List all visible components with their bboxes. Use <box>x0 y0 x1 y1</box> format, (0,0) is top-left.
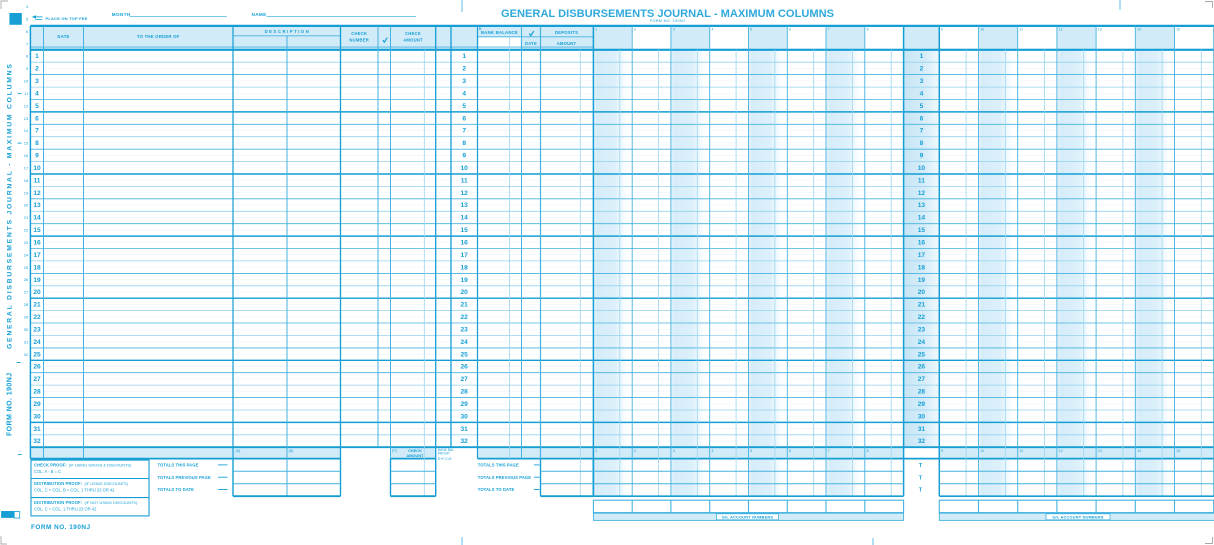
svg-text:15: 15 <box>918 227 926 234</box>
svg-text:TOTALS TO DATE: TOTALS TO DATE <box>478 487 515 492</box>
svg-text:4: 4 <box>712 28 714 32</box>
svg-text:12: 12 <box>1059 28 1063 32</box>
svg-text:2: 2 <box>634 449 636 453</box>
svg-text:3: 3 <box>673 28 675 32</box>
svg-text:14: 14 <box>33 215 41 222</box>
svg-text:11: 11 <box>918 177 925 184</box>
svg-text:31: 31 <box>24 339 29 344</box>
svg-text:15: 15 <box>461 227 469 234</box>
svg-text:7: 7 <box>828 449 830 453</box>
svg-text:13: 13 <box>1098 449 1102 453</box>
svg-text:19: 19 <box>461 277 469 284</box>
svg-text:28: 28 <box>33 389 41 396</box>
svg-text:23: 23 <box>33 326 41 333</box>
svg-text:21: 21 <box>33 302 41 309</box>
svg-text:4: 4 <box>920 91 924 98</box>
svg-text:3: 3 <box>920 78 924 85</box>
svg-text:6: 6 <box>462 115 466 122</box>
svg-text:3: 3 <box>462 78 466 85</box>
svg-text:25: 25 <box>918 351 926 358</box>
svg-text:AMOUNT: AMOUNT <box>557 41 577 46</box>
svg-text:1: 1 <box>920 53 924 60</box>
svg-text:32: 32 <box>33 438 41 445</box>
svg-text:17: 17 <box>24 166 29 171</box>
svg-text:8: 8 <box>867 28 869 32</box>
svg-text:31: 31 <box>33 426 41 433</box>
svg-text:8: 8 <box>35 140 39 147</box>
svg-text:TOTALS THIS PAGE: TOTALS THIS PAGE <box>158 463 199 468</box>
svg-text:7: 7 <box>828 28 830 32</box>
svg-text:31: 31 <box>461 426 469 433</box>
svg-text:16: 16 <box>33 240 41 247</box>
svg-text:GENERAL DISBURSEMENTS JOURNAL: GENERAL DISBURSEMENTS JOURNAL - MAXIMUM … <box>7 63 14 349</box>
svg-text:(IF USING GROSS & DISCOUNTS): (IF USING GROSS & DISCOUNTS) <box>69 463 132 468</box>
svg-text:10: 10 <box>980 449 984 453</box>
svg-text:7: 7 <box>920 128 924 135</box>
svg-text:PLACE ON TOP FEE: PLACE ON TOP FEE <box>46 16 88 21</box>
svg-text:6: 6 <box>920 115 924 122</box>
svg-text:23: 23 <box>461 326 469 333</box>
svg-text:NUMBER: NUMBER <box>349 37 369 42</box>
svg-text:22: 22 <box>24 228 29 233</box>
svg-text:13: 13 <box>918 202 926 209</box>
svg-text:26: 26 <box>461 364 469 371</box>
svg-text:32: 32 <box>918 438 926 445</box>
svg-text:17: 17 <box>918 252 926 259</box>
svg-text:14: 14 <box>24 128 29 133</box>
svg-text:8: 8 <box>920 140 924 147</box>
svg-text:CHECK PROOF:: CHECK PROOF: <box>34 463 67 468</box>
svg-text:26: 26 <box>918 364 926 371</box>
svg-text:18: 18 <box>918 264 926 271</box>
svg-text:TO THE ORDER OF: TO THE ORDER OF <box>137 34 180 39</box>
svg-text:(C): (C) <box>392 448 397 452</box>
svg-text:AMOUNT: AMOUNT <box>403 37 423 42</box>
svg-text:DATE: DATE <box>525 41 537 46</box>
svg-text:TOTALS PREVIOUS PAGE: TOTALS PREVIOUS PAGE <box>478 475 531 480</box>
svg-text:15: 15 <box>24 141 29 146</box>
svg-text:15: 15 <box>1176 28 1180 32</box>
svg-text:21: 21 <box>461 302 469 309</box>
svg-text:9: 9 <box>462 153 466 160</box>
svg-text:22: 22 <box>918 314 926 321</box>
svg-text:13: 13 <box>24 116 29 121</box>
svg-text:21: 21 <box>24 215 29 220</box>
svg-text:11: 11 <box>34 177 41 184</box>
svg-text:FORM NO. 190NJ: FORM NO. 190NJ <box>650 19 685 23</box>
svg-text:12: 12 <box>461 190 469 197</box>
svg-text:6: 6 <box>35 115 39 122</box>
svg-text:32: 32 <box>461 438 469 445</box>
svg-text:10: 10 <box>33 165 41 172</box>
svg-text:D E S C R I P T I O N: D E S C R I P T I O N <box>265 29 309 34</box>
svg-text:10: 10 <box>918 165 926 172</box>
svg-text:13: 13 <box>1098 28 1102 32</box>
svg-text:COL. C + COL. B = COL. 1 THRU: COL. C + COL. B = COL. 1 THRU 23 OR 42 <box>34 487 115 492</box>
svg-text:3: 3 <box>673 449 675 453</box>
svg-text:29: 29 <box>33 401 41 408</box>
svg-text:20: 20 <box>33 289 41 296</box>
svg-text:23: 23 <box>24 240 29 245</box>
svg-text:NAME: NAME <box>252 12 267 17</box>
svg-text:15: 15 <box>1176 449 1180 453</box>
svg-text:T: T <box>919 488 923 494</box>
svg-text:11: 11 <box>461 177 468 184</box>
svg-text:2: 2 <box>634 28 636 32</box>
svg-text:20: 20 <box>24 203 29 208</box>
svg-text:CHECK: CHECK <box>405 31 421 36</box>
svg-text:COL. C = COL. 1 THRU 23 OR 42: COL. C = COL. 1 THRU 23 OR 42 <box>34 507 97 512</box>
svg-text:BANK BALANCE: BANK BALANCE <box>481 30 518 35</box>
svg-text:17: 17 <box>33 252 41 259</box>
svg-text:5: 5 <box>750 28 752 32</box>
svg-text:12: 12 <box>1059 449 1063 453</box>
svg-text:1: 1 <box>595 449 597 453</box>
svg-text:26: 26 <box>33 364 41 371</box>
svg-text:18: 18 <box>33 264 41 271</box>
svg-text:G/L ACCOUNT NUMBERS: G/L ACCOUNT NUMBERS <box>722 515 774 520</box>
svg-text:5: 5 <box>462 103 466 110</box>
svg-text:20: 20 <box>918 289 926 296</box>
svg-text:3: 3 <box>35 78 39 85</box>
svg-text:DISTRIBUTION PROOF:: DISTRIBUTION PROOF: <box>34 481 82 486</box>
svg-text:11: 11 <box>1020 28 1024 32</box>
svg-text:8: 8 <box>867 449 869 453</box>
svg-text:28: 28 <box>461 389 469 396</box>
svg-text:29: 29 <box>918 401 926 408</box>
svg-text:15: 15 <box>33 227 41 234</box>
svg-text:30: 30 <box>24 327 29 332</box>
svg-text:19: 19 <box>918 277 926 284</box>
svg-text:1: 1 <box>35 53 39 60</box>
svg-text:28: 28 <box>24 302 29 307</box>
svg-text:(A): (A) <box>236 449 241 453</box>
svg-text:25: 25 <box>24 265 29 270</box>
svg-text:(IF USING DISCOUNTS): (IF USING DISCOUNTS) <box>85 481 129 486</box>
svg-text:5: 5 <box>35 103 39 110</box>
svg-text:30: 30 <box>918 413 926 420</box>
svg-text:4: 4 <box>712 449 714 453</box>
svg-text:24: 24 <box>461 339 469 346</box>
svg-text:PROOF:: PROOF: <box>438 452 451 456</box>
svg-text:27: 27 <box>461 376 469 383</box>
svg-text:4: 4 <box>35 91 39 98</box>
svg-text:AMOUNT: AMOUNT <box>406 453 424 458</box>
svg-text:FORM NO. 190NJ: FORM NO. 190NJ <box>31 524 91 531</box>
svg-text:24: 24 <box>24 252 29 257</box>
svg-text:29: 29 <box>24 315 29 320</box>
svg-text:TOTALS THIS PAGE: TOTALS THIS PAGE <box>478 463 519 468</box>
svg-text:5: 5 <box>920 103 924 110</box>
svg-text:5: 5 <box>750 449 752 453</box>
svg-text:16: 16 <box>918 240 926 247</box>
svg-text:T: T <box>919 475 923 481</box>
svg-text:CHECK: CHECK <box>351 31 367 36</box>
svg-text:26: 26 <box>24 277 29 282</box>
svg-text:T: T <box>919 463 923 469</box>
svg-text:14: 14 <box>461 215 469 222</box>
svg-text:31: 31 <box>918 426 926 433</box>
svg-text:29: 29 <box>461 401 469 408</box>
svg-text:21: 21 <box>918 302 926 309</box>
svg-text:FORM NO. 190NJ: FORM NO. 190NJ <box>7 372 14 436</box>
svg-text:14: 14 <box>1137 28 1141 32</box>
svg-text:30: 30 <box>461 413 469 420</box>
svg-text:4: 4 <box>462 91 466 98</box>
svg-text:6: 6 <box>789 28 791 32</box>
svg-text:9: 9 <box>35 153 39 160</box>
svg-text:24: 24 <box>918 339 926 346</box>
svg-text:TOTALS TO DATE: TOTALS TO DATE <box>158 487 195 492</box>
svg-text:20: 20 <box>461 289 469 296</box>
svg-text:2: 2 <box>462 66 466 73</box>
svg-text:8: 8 <box>462 140 466 147</box>
svg-text:18: 18 <box>24 178 29 183</box>
svg-text:10: 10 <box>24 79 29 84</box>
svg-text:28: 28 <box>918 389 926 396</box>
svg-text:19: 19 <box>24 190 29 195</box>
svg-text:25: 25 <box>33 351 41 358</box>
svg-text:23: 23 <box>918 326 926 333</box>
svg-text:DATE: DATE <box>57 34 69 39</box>
svg-text:1: 1 <box>462 53 466 60</box>
svg-text:2: 2 <box>920 66 924 73</box>
svg-text:7: 7 <box>35 128 39 135</box>
svg-text:TOTALS PREVIOUS PAGE: TOTALS PREVIOUS PAGE <box>158 475 211 480</box>
svg-text:19: 19 <box>33 277 41 284</box>
svg-text:14: 14 <box>918 215 926 222</box>
svg-text:2: 2 <box>35 66 39 73</box>
svg-text:(B): (B) <box>289 449 294 453</box>
svg-text:24: 24 <box>33 339 41 346</box>
svg-text:22: 22 <box>461 314 469 321</box>
svg-text:9: 9 <box>920 153 924 160</box>
svg-text:12: 12 <box>918 190 926 197</box>
svg-text:10: 10 <box>461 165 469 172</box>
svg-text:7: 7 <box>462 128 466 135</box>
svg-text:G/L ACCOUNT NUMBERS: G/L ACCOUNT NUMBERS <box>1052 515 1104 520</box>
svg-text:6: 6 <box>789 449 791 453</box>
svg-text:27: 27 <box>33 376 41 383</box>
svg-text:12: 12 <box>33 190 41 197</box>
svg-text:27: 27 <box>24 290 29 295</box>
svg-text:D+F-C=E: D+F-C=E <box>438 457 453 461</box>
svg-text:9: 9 <box>941 28 943 32</box>
svg-text:13: 13 <box>461 202 469 209</box>
svg-text:30: 30 <box>33 413 41 420</box>
svg-text:27: 27 <box>918 376 926 383</box>
svg-text:12: 12 <box>24 103 29 108</box>
svg-text:14: 14 <box>1137 449 1141 453</box>
svg-text:18: 18 <box>461 264 469 271</box>
svg-text:MONTH: MONTH <box>112 12 131 17</box>
svg-text:17: 17 <box>461 252 469 259</box>
svg-text:32: 32 <box>24 352 29 357</box>
svg-text:9: 9 <box>941 449 943 453</box>
svg-text:1: 1 <box>595 28 597 32</box>
svg-text:(IF NOT USING DISCOUNTS): (IF NOT USING DISCOUNTS) <box>85 500 138 505</box>
svg-text:COL. A - B = C: COL. A - B = C <box>34 469 61 474</box>
svg-text:DISTRIBUTION PROOF:: DISTRIBUTION PROOF: <box>34 500 82 505</box>
svg-text:16: 16 <box>461 240 469 247</box>
svg-text:11: 11 <box>1020 449 1024 453</box>
svg-text:10: 10 <box>980 28 984 32</box>
svg-text:13: 13 <box>33 202 41 209</box>
svg-text:DEPOSITS: DEPOSITS <box>555 30 578 35</box>
svg-text:22: 22 <box>33 314 41 321</box>
svg-text:16: 16 <box>24 153 29 158</box>
svg-text:25: 25 <box>461 351 469 358</box>
